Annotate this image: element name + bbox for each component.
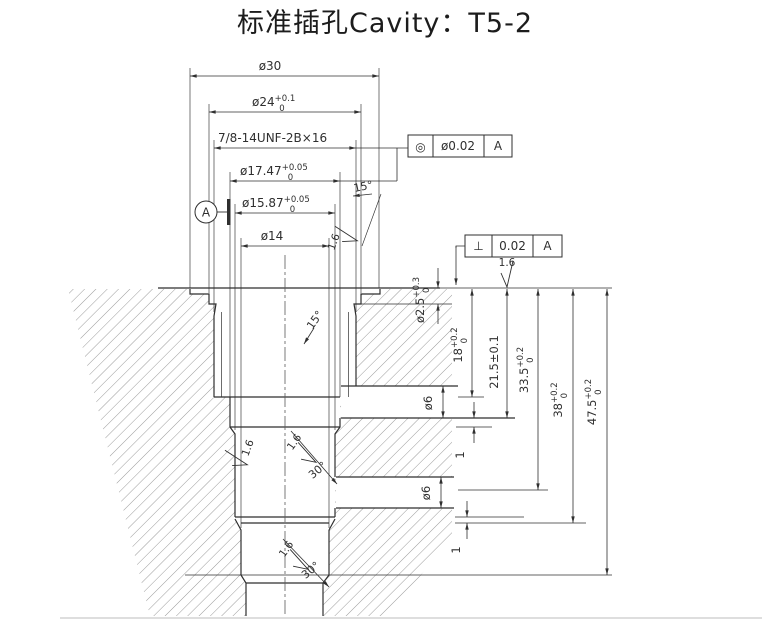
fcf2-tolerance: 0.02: [499, 239, 526, 253]
dim-step1: 1: [453, 451, 467, 458]
dim-step2: 1: [449, 546, 463, 553]
dim-d215: 21.5±0.1: [487, 335, 501, 389]
dim-d1747: ø17.47+0.050: [240, 163, 308, 183]
dim-d6-lower: ø6: [419, 486, 433, 500]
drawing-title: 标准插孔Cavity：T5-2: [237, 8, 533, 39]
side-port-lower: [336, 477, 454, 508]
dim-d335: 33.5+0.20: [516, 347, 536, 393]
dim-d30: ø30: [259, 59, 282, 73]
engineering-drawing-sheet: 标准插孔Cavity：T5-2: [0, 0, 770, 621]
fcf1-tolerance: ø0.02: [441, 139, 475, 153]
fcf2-datum: A: [543, 239, 552, 253]
angle-taper-label: 15°: [352, 178, 374, 195]
cavity-section-drawing: 标准插孔Cavity：T5-2: [0, 0, 770, 621]
datum-target-bar: [227, 199, 231, 225]
concentricity-icon: ◎: [415, 140, 425, 154]
roughness-value: 1.6: [499, 257, 516, 269]
datum-feature: A: [195, 199, 231, 225]
dim-d18: 18+0.20: [450, 327, 470, 362]
dim-d24: ø24+0.10: [252, 94, 295, 114]
horizontal-dimension-lines: [190, 76, 408, 246]
fcf-concentricity: ◎ ø0.02 A: [408, 135, 512, 157]
dim-d14: ø14: [261, 229, 284, 243]
diameter-dimension-labels: ø30 ø24+0.10 7/8-14UNF-2B×16 ø17.47+0.05…: [218, 59, 327, 243]
dim-d475: 47.5+0.20: [584, 379, 604, 425]
dim-d6-upper: ø6: [421, 396, 435, 410]
side-port-upper: [341, 386, 458, 418]
dim-d1587: ø15.87+0.050: [242, 195, 310, 215]
dim-d38: 38+0.20: [550, 382, 570, 417]
perpendicularity-icon: ⊥: [473, 239, 483, 253]
dim-thread: 7/8-14UNF-2B×16: [218, 131, 327, 145]
datum-label: A: [202, 206, 211, 220]
fcf1-datum: A: [494, 139, 503, 153]
depth-dimension-lines: [438, 268, 607, 575]
